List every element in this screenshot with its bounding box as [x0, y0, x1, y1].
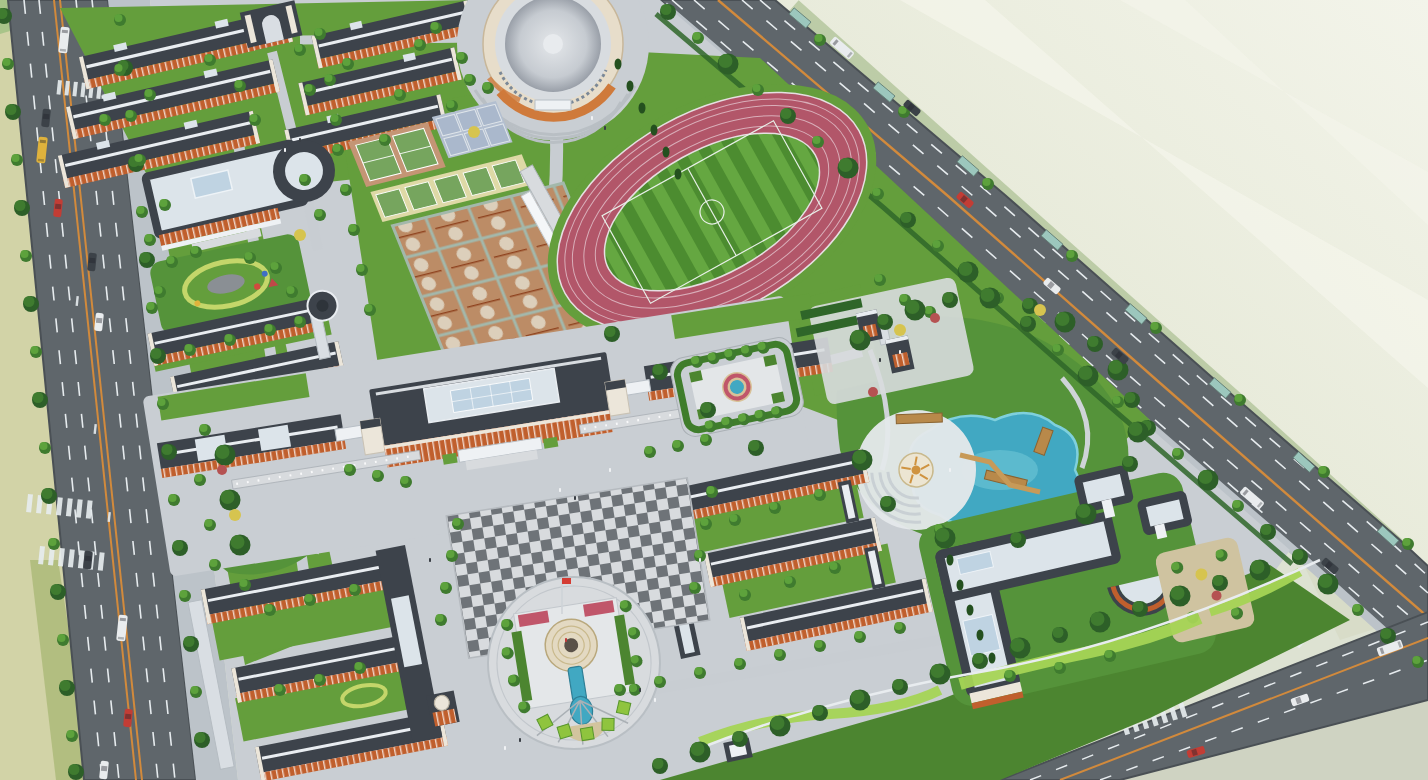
campus-aerial-rendering — [0, 0, 1428, 780]
cupola-tower — [426, 690, 460, 727]
